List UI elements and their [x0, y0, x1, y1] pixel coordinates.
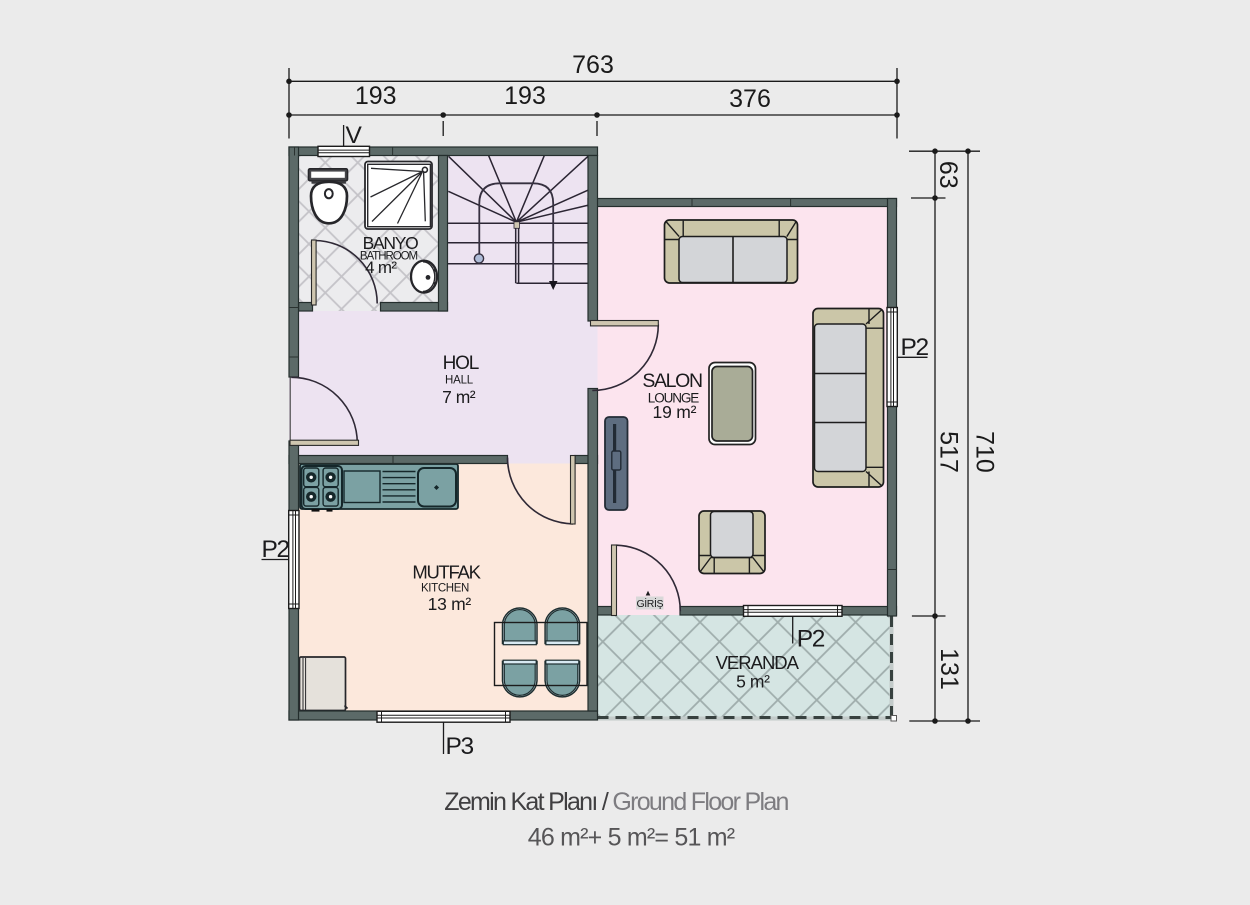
- svg-text:HOL: HOL: [443, 353, 479, 374]
- svg-text:VERANDA: VERANDA: [716, 652, 800, 673]
- svg-text:517: 517: [934, 431, 962, 473]
- svg-text:MUTFAK: MUTFAK: [412, 562, 481, 583]
- svg-text:Zemin Kat Planı / Ground Floor: Zemin Kat Planı / Ground Floor Plan: [444, 788, 788, 816]
- svg-text:376: 376: [729, 85, 771, 113]
- svg-text:SALON: SALON: [642, 370, 702, 392]
- svg-text:KITCHEN: KITCHEN: [421, 583, 469, 595]
- svg-text:P2: P2: [901, 334, 929, 361]
- svg-text:GİRİŞ: GİRİŞ: [637, 597, 664, 610]
- svg-text:P3: P3: [446, 733, 474, 760]
- svg-text:V: V: [346, 122, 363, 149]
- svg-text:13 m²: 13 m²: [428, 594, 472, 614]
- svg-text:4 m²: 4 m²: [365, 258, 397, 277]
- svg-text:46 m²+ 5 m²= 51 m²: 46 m²+ 5 m²= 51 m²: [528, 824, 735, 852]
- svg-text:193: 193: [355, 82, 397, 110]
- svg-text:HALL: HALL: [445, 374, 474, 386]
- svg-text:193: 193: [504, 82, 546, 110]
- svg-text:19 m²: 19 m²: [653, 402, 697, 422]
- svg-text:5 m²: 5 m²: [736, 672, 770, 692]
- svg-text:131: 131: [935, 648, 963, 690]
- svg-text:763: 763: [572, 51, 614, 79]
- svg-text:63: 63: [934, 161, 962, 189]
- svg-text:710: 710: [971, 431, 999, 473]
- svg-text:P2: P2: [797, 626, 825, 653]
- svg-text:P2: P2: [262, 536, 290, 563]
- svg-text:7 m²: 7 m²: [442, 387, 476, 407]
